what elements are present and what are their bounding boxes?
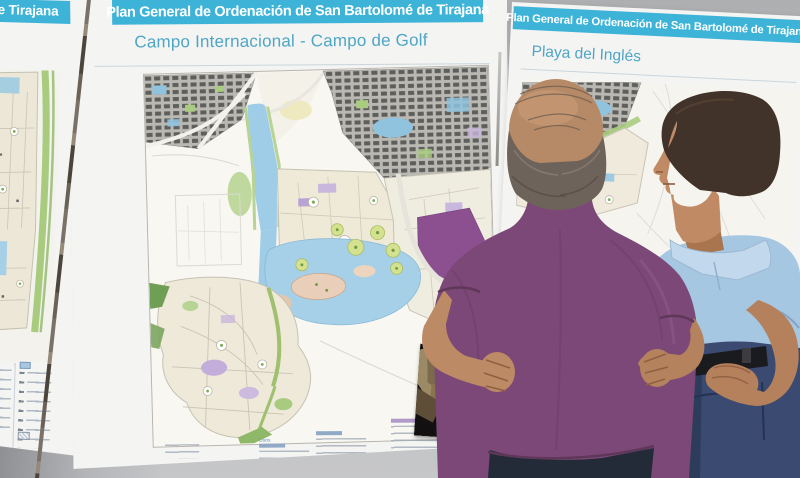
blue-man-hair — [662, 91, 781, 196]
people-overlay — [0, 0, 800, 478]
purple-polo-shirt — [433, 200, 698, 478]
exhibition-wall: e Tirajana — [0, 0, 800, 478]
